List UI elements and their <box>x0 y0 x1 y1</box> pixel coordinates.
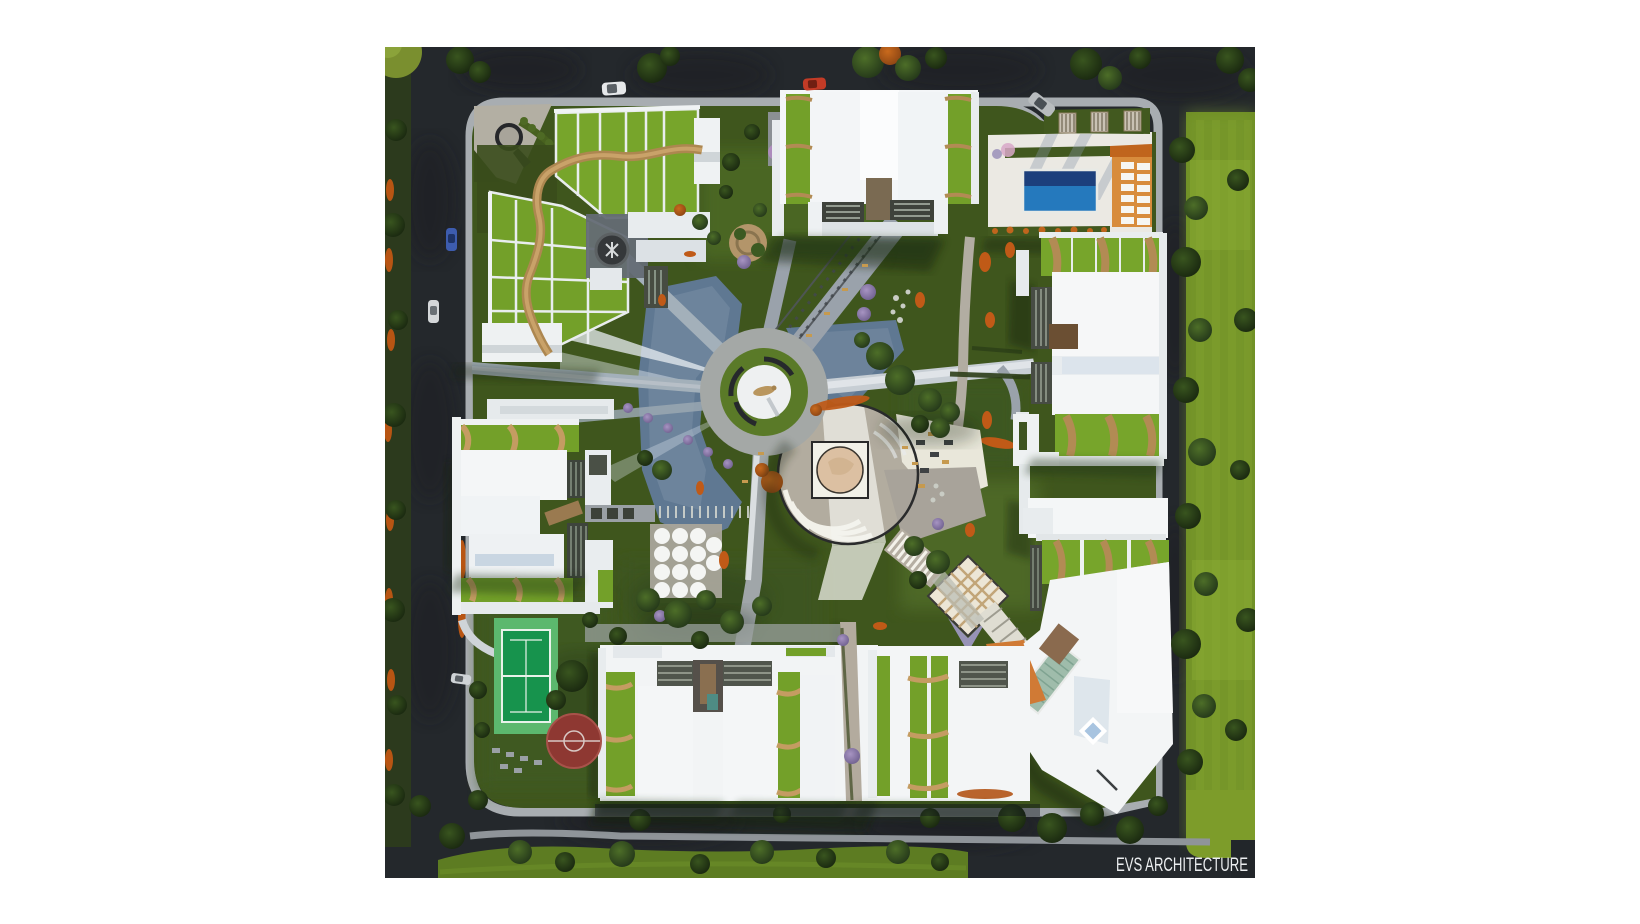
svg-text:EVS ARCHITECTURE: EVS ARCHITECTURE <box>1116 855 1248 876</box>
